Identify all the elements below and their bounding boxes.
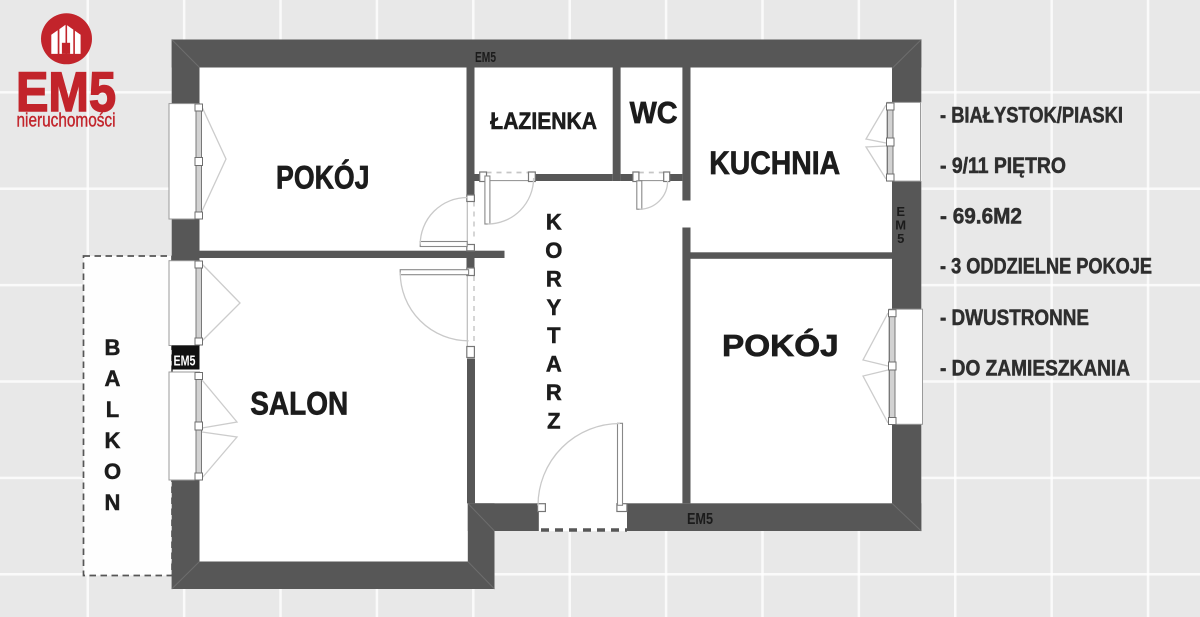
svg-text:T: T [547,323,561,348]
svg-text:N: N [105,490,121,515]
svg-text:nieruchomości: nieruchomości [17,111,116,132]
svg-text:- DO ZAMIESZKANIA: - DO ZAMIESZKANIA [940,356,1130,381]
svg-text:- DWUSTRONNE: - DWUSTRONNE [940,305,1089,330]
svg-text:SALON: SALON [250,386,348,422]
svg-text:EM5: EM5 [687,511,713,528]
svg-text:L: L [106,397,119,422]
svg-text:O: O [104,459,121,484]
svg-text:POKÓJ: POKÓJ [722,327,839,363]
svg-text:R: R [546,266,562,291]
svg-text:POKÓJ: POKÓJ [276,159,370,195]
svg-text:K: K [546,209,562,234]
svg-text:EM5: EM5 [475,50,496,66]
svg-text:A: A [105,366,121,391]
svg-text:Y: Y [546,295,561,320]
svg-text:ŁAZIENKA: ŁAZIENKA [490,108,597,135]
svg-text:- 3 ODDZIELNE POKOJE: - 3 ODDZIELNE POKOJE [940,254,1152,279]
svg-text:- BIAŁYSTOK/PIASKI: - BIAŁYSTOK/PIASKI [940,103,1123,128]
svg-text:- 9/11 PIĘTRO: - 9/11 PIĘTRO [940,153,1066,178]
svg-text:R: R [546,380,562,405]
svg-text:EM5: EM5 [174,354,196,370]
svg-text:Z: Z [547,409,560,434]
svg-text:A: A [546,352,562,377]
svg-text:KUCHNIA: KUCHNIA [709,145,840,181]
svg-text:B: B [105,335,121,360]
svg-text:O: O [545,238,562,263]
svg-text:WC: WC [630,95,678,130]
svg-text:5: 5 [897,231,904,246]
svg-text:- 69.6M2: - 69.6M2 [940,204,1022,229]
svg-text:K: K [105,428,121,453]
